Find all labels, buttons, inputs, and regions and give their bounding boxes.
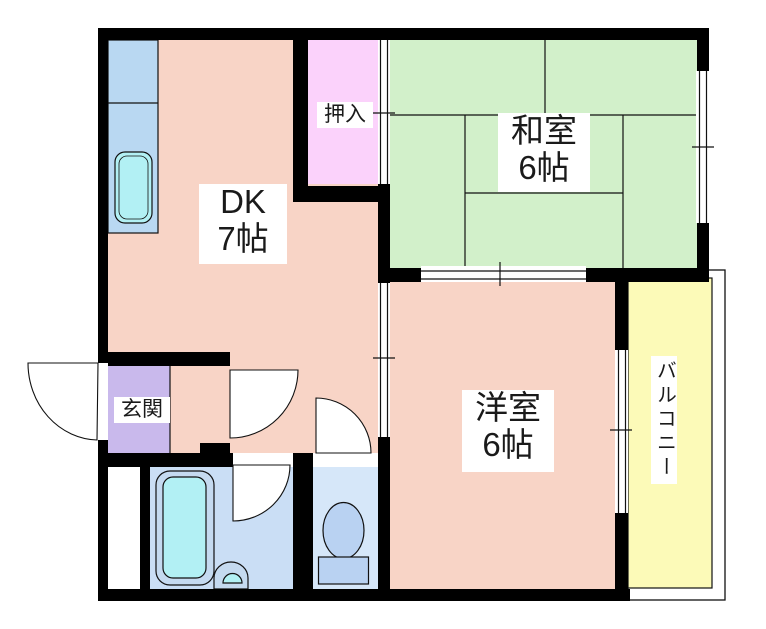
wall-oshiire-left bbox=[293, 28, 308, 202]
dk-label: DK 7帖 bbox=[199, 184, 287, 264]
floorplan-drawing bbox=[0, 0, 766, 629]
wall-dk-bottom bbox=[98, 352, 230, 366]
washitsu-name: 和室 bbox=[498, 113, 590, 150]
wall-yoshitsu-balcony-top bbox=[615, 282, 628, 350]
wall-oshiire-bottom bbox=[293, 186, 390, 202]
wall-mid-lower bbox=[378, 437, 390, 589]
opening-toilet bbox=[313, 453, 378, 467]
toilet-bowl bbox=[323, 503, 364, 559]
wall-washitsu-bottom-right bbox=[586, 268, 709, 282]
entrance-door-swing bbox=[28, 363, 98, 440]
kitchen-sink bbox=[115, 152, 152, 223]
wall-bath-toilet bbox=[293, 453, 313, 589]
oshiire-label: 押入 bbox=[317, 102, 373, 128]
washitsu-label: 和室 6帖 bbox=[498, 113, 590, 192]
wall-left-upper bbox=[98, 28, 108, 363]
genkan-label: 玄関 bbox=[114, 397, 170, 423]
yoshitsu-label: 洋室 6帖 bbox=[462, 390, 554, 472]
dk-size: 7帖 bbox=[199, 221, 287, 258]
floorplan: DK 7帖 和室 6帖 洋室 6帖 押入 玄関 バルコニー bbox=[0, 0, 766, 629]
yoshitsu-size: 6帖 bbox=[462, 427, 554, 464]
wall-yoshitsu-balcony-bottom bbox=[615, 513, 628, 589]
bathtub-inner bbox=[163, 477, 206, 578]
balcony-label: バルコニー bbox=[651, 356, 677, 484]
wall-bath-top bbox=[98, 453, 233, 467]
wall-stub bbox=[200, 443, 230, 453]
yoshitsu-name: 洋室 bbox=[462, 390, 554, 427]
wall-void-right bbox=[140, 465, 150, 589]
wall-mid-upper bbox=[378, 184, 390, 283]
wall-top bbox=[98, 28, 709, 40]
washitsu-size: 6帖 bbox=[498, 150, 590, 187]
wall-washitsu-right-top bbox=[697, 28, 709, 71]
dk-name: DK bbox=[199, 184, 287, 221]
opening-entrance bbox=[98, 363, 108, 440]
toilet-tank bbox=[319, 557, 369, 584]
wall-bottom bbox=[98, 589, 630, 601]
void-strip bbox=[108, 467, 140, 589]
